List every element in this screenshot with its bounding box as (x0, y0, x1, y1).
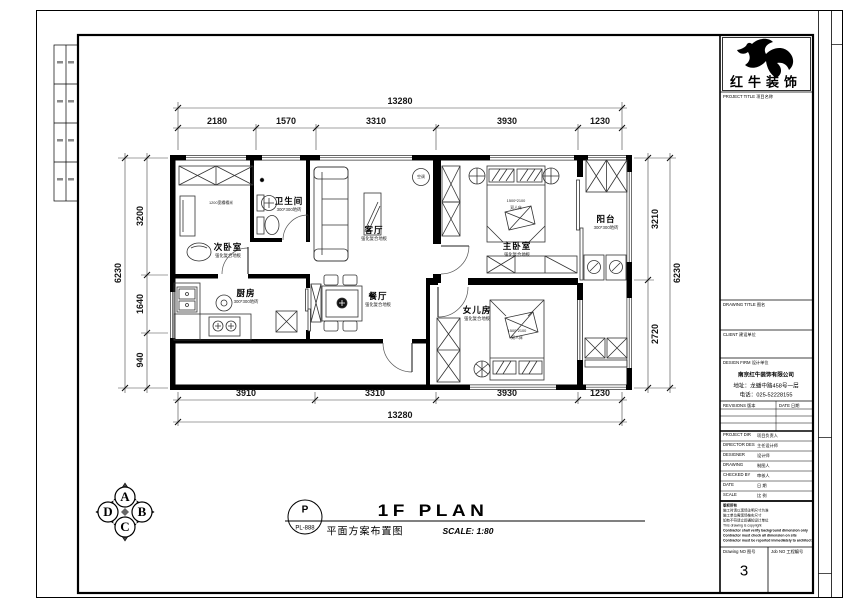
room-label-balcony: 阳台 (596, 213, 615, 225)
compass-letter-a: A (120, 489, 129, 505)
windows (170, 155, 632, 390)
room-floor-kitchen: 300*300地砖 (234, 299, 259, 305)
tb-credit-label-6: SCALE (723, 493, 737, 497)
room-floor-bedroom2: 强化复合地板 (215, 253, 241, 259)
room-floor-bathroom: 300*300地砖 (277, 207, 302, 213)
tatami-label: 1200宽榻榻米 (209, 200, 233, 206)
dim-bottom-4: 1230 (590, 388, 610, 398)
tb-firm-address: 地址：龙蟠中路458号一层 (733, 382, 798, 390)
signature-strip (54, 45, 78, 201)
dim-top-total: 13280 (387, 96, 412, 106)
dim-top-3: 3310 (366, 116, 386, 126)
ac-label: 空调 (417, 174, 425, 180)
tb-firm-name: 南京红牛装饰有限公司 (738, 371, 794, 379)
dim-top-4: 3930 (497, 116, 517, 126)
tb-credit-label-2: DESIGNER (723, 453, 745, 457)
tb-date-col-label: DATE 日期 (779, 403, 799, 409)
room-floor-living: 强化复合地板 (361, 236, 387, 242)
tb-credit-value-4: 审核人 (757, 473, 770, 479)
dim-bottom-total: 13280 (387, 410, 412, 420)
room-floor-master: 强化复合地板 (504, 252, 530, 258)
room-label-master: 主卧室 (503, 240, 532, 252)
tb-credit-label-4: CHECKED BY (723, 473, 750, 477)
tb-drawing-no: 3 (740, 563, 748, 580)
tb-credit-label-1: DIRECTOR DES (723, 443, 755, 447)
tb-credit-label-5: DATE (723, 483, 734, 487)
room-label-kitchen: 厨房 (236, 287, 255, 299)
tb-credit-label-3: DRAWING (723, 463, 743, 467)
stamp-code: PL-888 (295, 525, 314, 531)
dim-left-1: 3200 (135, 206, 145, 226)
tb-note-5: Contractor must check all dimension on s… (723, 534, 797, 538)
room-label-dining: 餐厅 (368, 290, 387, 302)
stamp-letter: P (302, 505, 309, 516)
dim-right-1: 3210 (650, 209, 660, 229)
compass-letter-d: D (103, 504, 112, 520)
room-floor-girlroom: 强化复合地板 (464, 316, 490, 322)
tb-credit-value-2: 设计师 (757, 453, 770, 459)
master-bed-size: 1500*2100 (507, 199, 526, 203)
room-label-bathroom: 卫生间 (275, 195, 304, 207)
dim-right-2: 2720 (650, 324, 660, 344)
dim-left-2: 1640 (135, 294, 145, 314)
tb-revisions-label: REVISIONS 版本 (723, 403, 755, 409)
dim-bottom-1: 3910 (236, 388, 256, 398)
exterior-walls (170, 155, 632, 390)
girl-bed-type: 双人床 (511, 335, 523, 341)
dim-top-2: 1570 (276, 116, 296, 126)
dimension-ticks (122, 105, 673, 425)
tb-firm-phone: 电话：025-52228155 (740, 391, 793, 399)
tb-credit-value-1: 主任设计师 (757, 443, 778, 449)
drawing-title-en: 1F PLAN (378, 501, 489, 521)
tb-credit-value-5: 日 期 (757, 483, 767, 489)
tb-credit-value-0: 项目负责人 (757, 433, 778, 439)
tb-firm-label: DESIGN FIRM 设计单位 (723, 360, 769, 366)
room-label-bedroom2: 次卧室 (214, 241, 243, 253)
dim-left-3: 940 (135, 352, 145, 367)
tb-project-label: PROJECT TITLE 项目名称 (723, 94, 773, 100)
interior-walls (170, 155, 583, 385)
brand-name: 红牛装饰 (730, 72, 802, 91)
tb-drawing-label: DRAWING TITLE 图名 (723, 302, 765, 308)
tb-credit-value-6: 比 例 (757, 493, 767, 499)
tb-job-no-label: Job NO 工程编号 (771, 549, 803, 555)
dim-bottom-3: 3930 (497, 388, 517, 398)
tb-credit-label-0: PROJECT DIR (723, 433, 751, 437)
tb-note-4: Contractor shall verify background dimen… (723, 529, 808, 533)
drawing-scale: SCALE: 1:80 (442, 526, 493, 536)
compass-letter-c: C (120, 519, 129, 535)
tb-drawing-no-label: Drawing NO 图号 (723, 549, 755, 555)
room-label-living: 客厅 (364, 224, 383, 236)
tb-credit-value-3: 制图人 (757, 463, 770, 469)
dimension-lines (118, 102, 676, 426)
dim-top-5: 1230 (590, 116, 610, 126)
dim-left-total: 6230 (113, 263, 123, 283)
girl-bed-size: 1500*2100 (508, 329, 527, 333)
dim-bottom-2: 3310 (365, 388, 385, 398)
drawing-title-cn: 平面方案布置图 (327, 523, 404, 538)
dim-top-1: 2180 (207, 116, 227, 126)
tb-note-3: This drawing is copyright (723, 524, 762, 528)
master-bed-type: 双人床 (510, 205, 522, 211)
tb-note-6: Contractor must be reported immediately … (723, 539, 811, 543)
room-label-girlroom: 女儿房 (463, 304, 492, 316)
tb-client-label: CLIENT 建设单位 (723, 332, 756, 338)
furniture (174, 160, 627, 382)
drawing-sheet: 13280 2180 1570 3310 3930 1230 3910 3310… (0, 0, 860, 608)
room-floor-dining: 强化复合地板 (365, 302, 391, 308)
tb-note-2: 如有不符请立即通知设计单位 (723, 518, 769, 523)
room-floor-balcony: 300*300地砖 (594, 225, 619, 231)
compass-letter-b: B (138, 504, 147, 520)
dim-right-total: 6230 (672, 263, 682, 283)
